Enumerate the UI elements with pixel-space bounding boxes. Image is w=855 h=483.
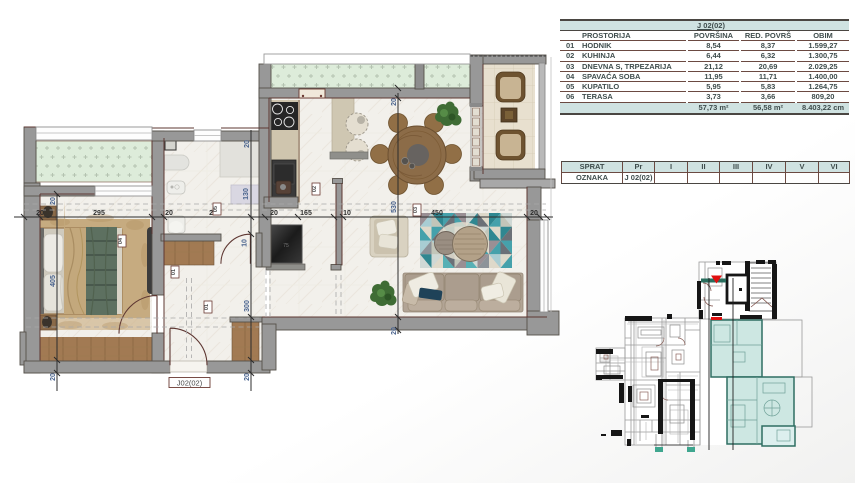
svg-text:450: 450	[431, 210, 443, 217]
svg-text:20: 20	[244, 373, 251, 381]
svg-text:20: 20	[165, 210, 173, 217]
svg-text:05: 05	[213, 206, 219, 212]
svg-text:J02(02): J02(02)	[177, 379, 203, 388]
svg-text:130: 130	[243, 188, 250, 200]
svg-text:10: 10	[242, 239, 249, 247]
svg-text:295: 295	[93, 210, 105, 217]
svg-text:300: 300	[244, 300, 251, 312]
svg-text:20: 20	[391, 327, 398, 335]
svg-text:04: 04	[118, 237, 124, 244]
svg-text:20: 20	[36, 210, 44, 217]
svg-text:20: 20	[391, 98, 398, 106]
svg-text:01: 01	[204, 304, 210, 310]
svg-text:02: 02	[312, 186, 318, 192]
svg-text:20: 20	[50, 373, 57, 381]
svg-text:20: 20	[50, 197, 57, 205]
svg-text:20: 20	[244, 140, 251, 148]
svg-text:20: 20	[530, 210, 538, 217]
svg-text:405: 405	[50, 275, 57, 287]
svg-text:01: 01	[171, 269, 177, 275]
svg-text:165: 165	[300, 210, 312, 217]
svg-text:03: 03	[413, 207, 419, 213]
svg-text:75: 75	[283, 243, 289, 249]
svg-text:10: 10	[343, 210, 351, 217]
svg-text:20: 20	[270, 210, 278, 217]
svg-text:530: 530	[391, 201, 398, 213]
